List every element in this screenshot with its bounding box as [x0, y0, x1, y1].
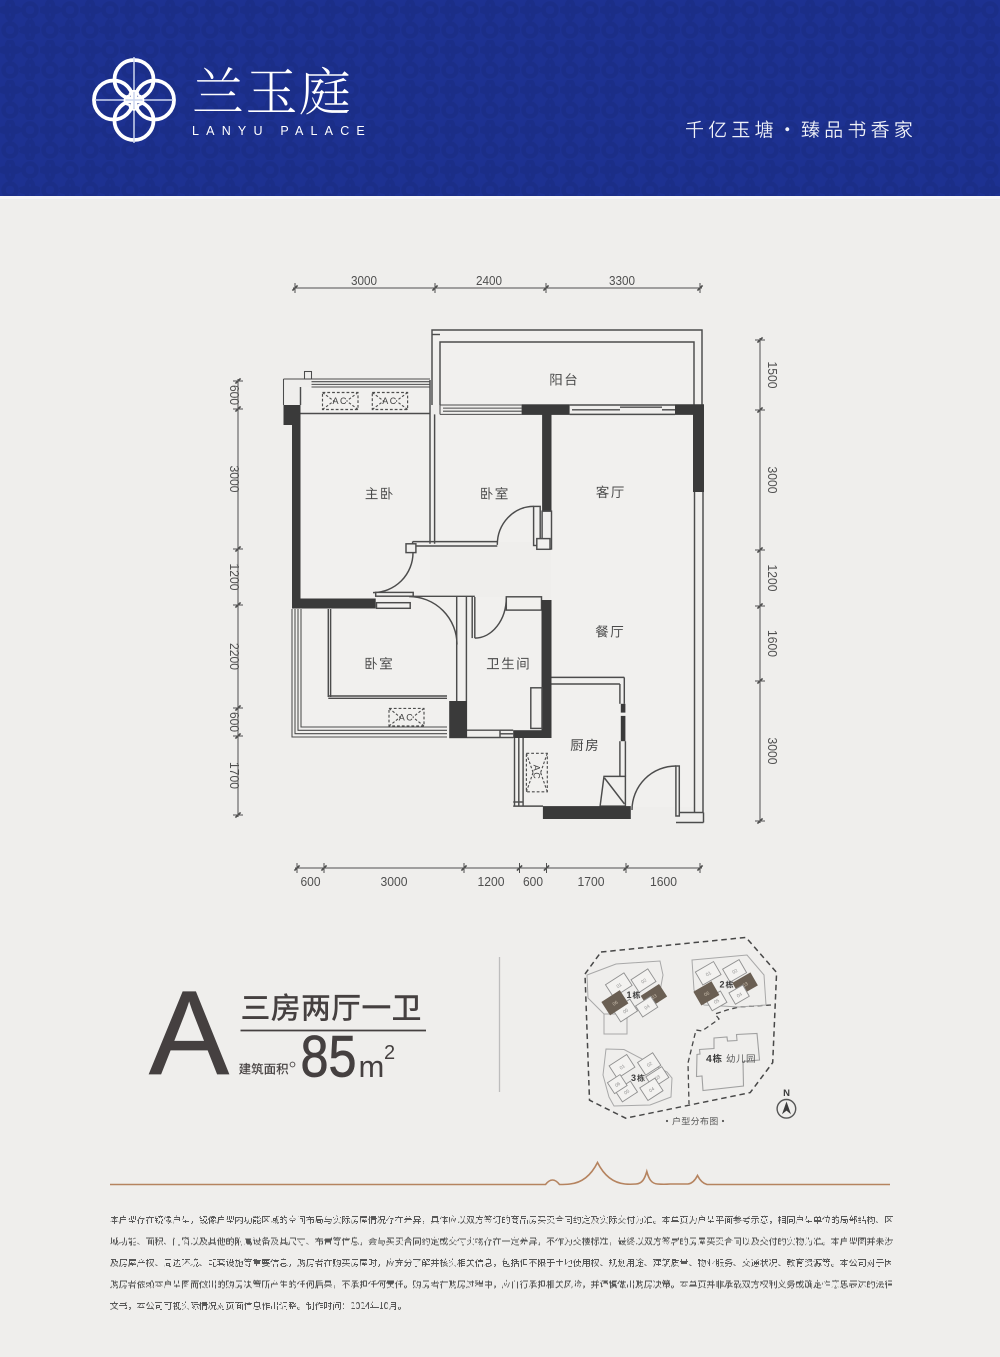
svg-text:1700: 1700	[578, 874, 605, 889]
svg-text:3000: 3000	[227, 466, 242, 493]
svg-text:2: 2	[720, 980, 725, 990]
svg-text:LANYU PALACE: LANYU PALACE	[192, 124, 372, 138]
svg-text:1200: 1200	[478, 874, 505, 889]
svg-text:3: 3	[631, 1073, 636, 1083]
svg-text:3000: 3000	[765, 467, 780, 494]
svg-text:m: m	[359, 1049, 385, 1084]
svg-text:AC: AC	[382, 396, 398, 406]
svg-text:N: N	[783, 1088, 790, 1099]
svg-text:1: 1	[627, 990, 632, 1000]
svg-text:2200: 2200	[227, 643, 242, 670]
svg-text:1700: 1700	[227, 762, 242, 789]
svg-text:1600: 1600	[650, 874, 677, 889]
svg-text:600: 600	[301, 874, 321, 889]
svg-text:600: 600	[227, 385, 242, 405]
svg-text:3000: 3000	[351, 273, 377, 288]
svg-text:1200: 1200	[765, 565, 780, 592]
svg-text:600: 600	[227, 712, 242, 732]
svg-text:AC: AC	[532, 765, 542, 781]
svg-text:AC: AC	[399, 712, 415, 722]
svg-text:3000: 3000	[765, 738, 780, 765]
svg-text:4: 4	[706, 1053, 712, 1065]
svg-text:85: 85	[301, 1025, 357, 1090]
svg-text:A: A	[149, 966, 229, 1100]
svg-text:1200: 1200	[227, 564, 242, 591]
svg-text:3300: 3300	[609, 273, 635, 288]
svg-text:600: 600	[523, 874, 543, 889]
svg-text:1500: 1500	[765, 362, 780, 389]
svg-text:AC: AC	[332, 396, 348, 406]
svg-text:2400: 2400	[476, 273, 502, 288]
svg-text:1600: 1600	[765, 630, 780, 657]
svg-text:2: 2	[384, 1042, 395, 1064]
svg-text:3000: 3000	[381, 874, 408, 889]
